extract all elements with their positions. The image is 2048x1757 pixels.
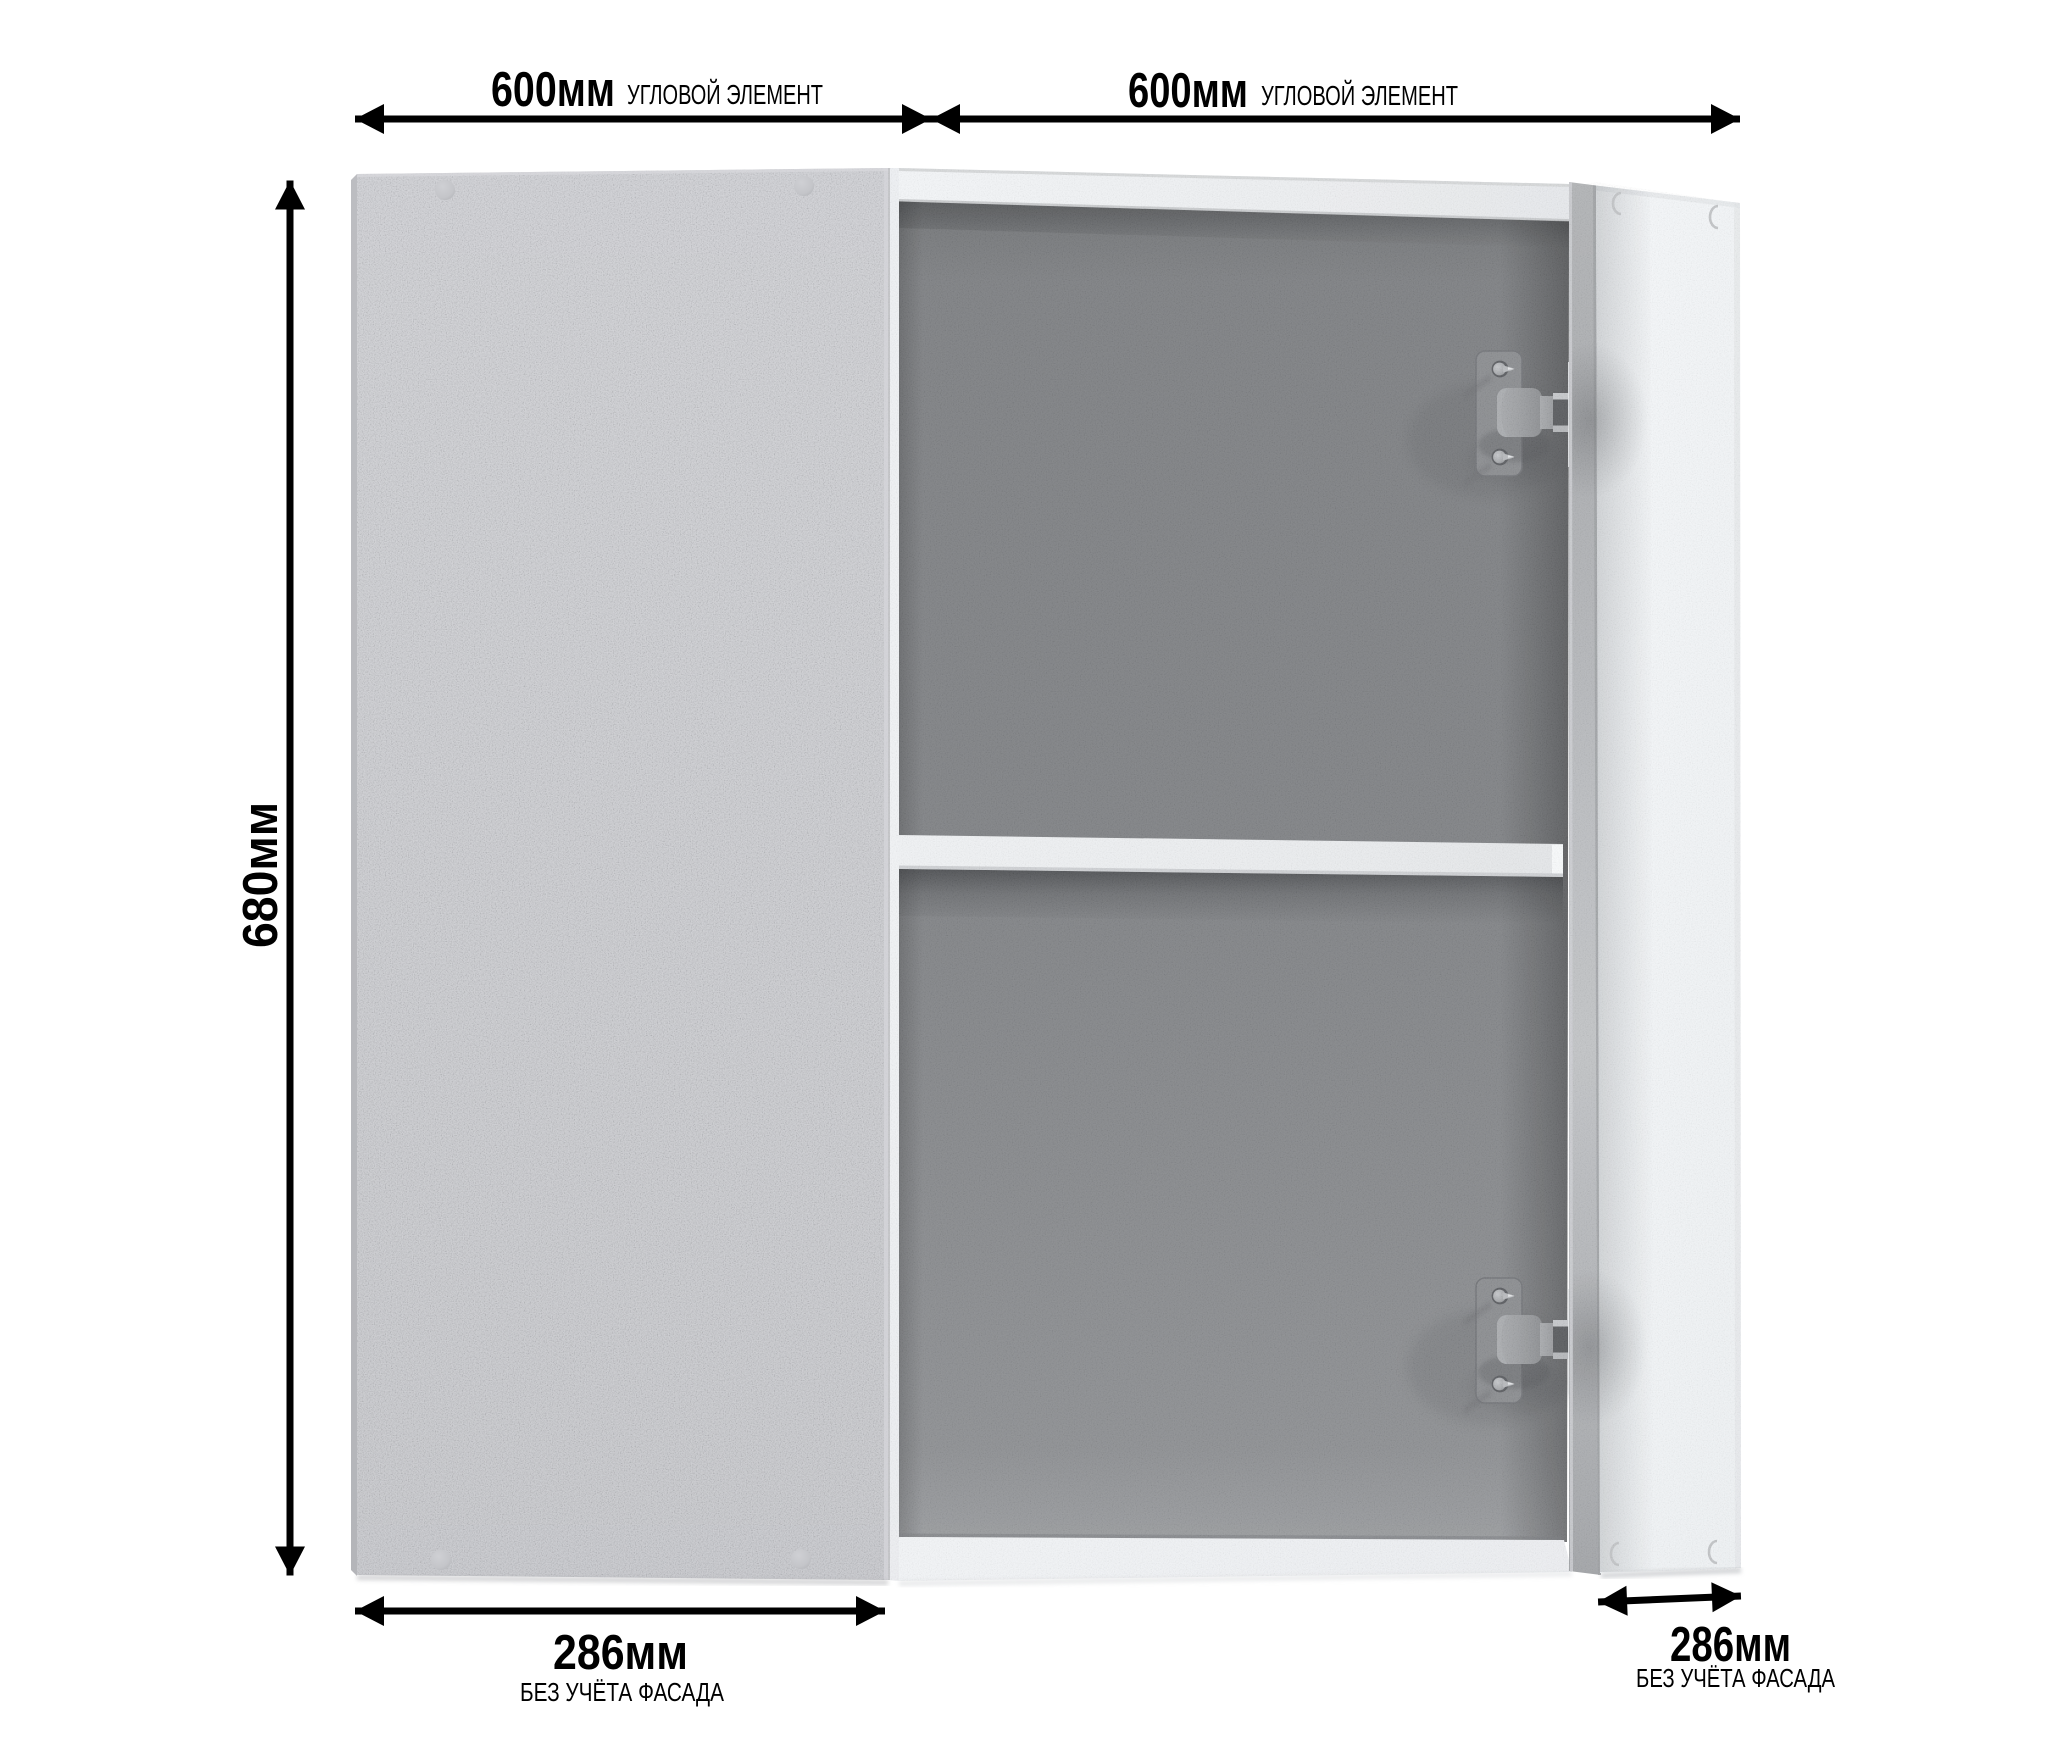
svg-text:УГЛОВОЙ ЭЛЕМЕНТ: УГЛОВОЙ ЭЛЕМЕНТ — [627, 79, 823, 110]
svg-text:680мм: 680мм — [234, 802, 288, 948]
svg-text:600мм: 600мм — [1128, 64, 1248, 118]
svg-text:БЕЗ УЧЁТА ФАСАДА: БЕЗ УЧЁТА ФАСАДА — [520, 1677, 725, 1707]
svg-text:УГЛОВОЙ ЭЛЕМЕНТ: УГЛОВОЙ ЭЛЕМЕНТ — [1261, 80, 1458, 111]
svg-text:600мм: 600мм — [491, 63, 615, 117]
svg-text:286мм: 286мм — [553, 1626, 688, 1680]
svg-text:БЕЗ УЧЁТА ФАСАДА: БЕЗ УЧЁТА ФАСАДА — [1636, 1663, 1836, 1693]
